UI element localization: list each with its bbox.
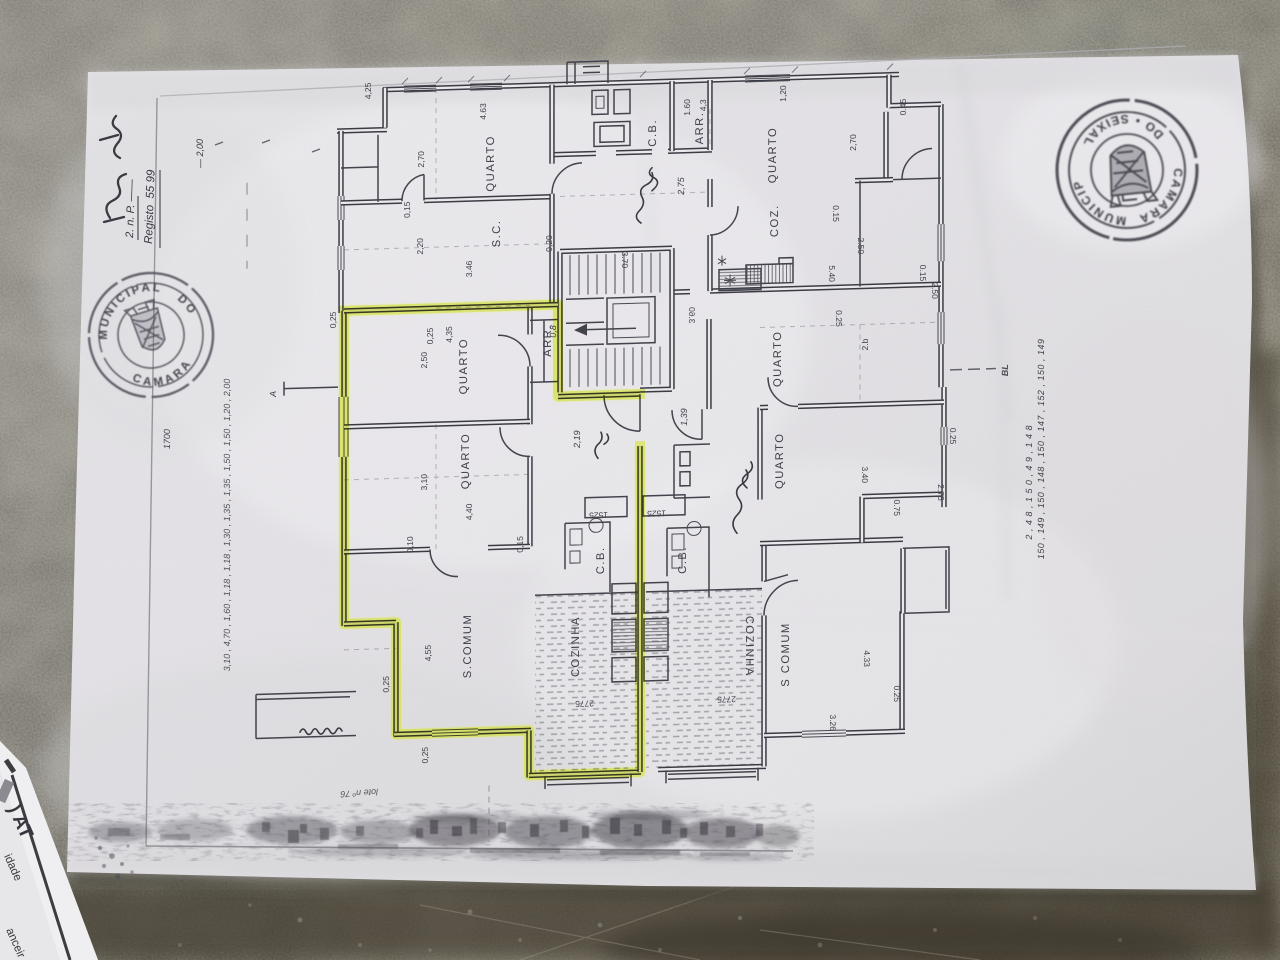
svg-text:— 2,00: — 2,00 <box>195 139 205 169</box>
svg-text:Registo 55 99: Registo 55 99 <box>143 169 158 244</box>
svg-text:CAMARA: CAMARA <box>128 354 199 396</box>
svg-text:2. n. P. ——: 2. n. P. —— <box>124 178 138 239</box>
